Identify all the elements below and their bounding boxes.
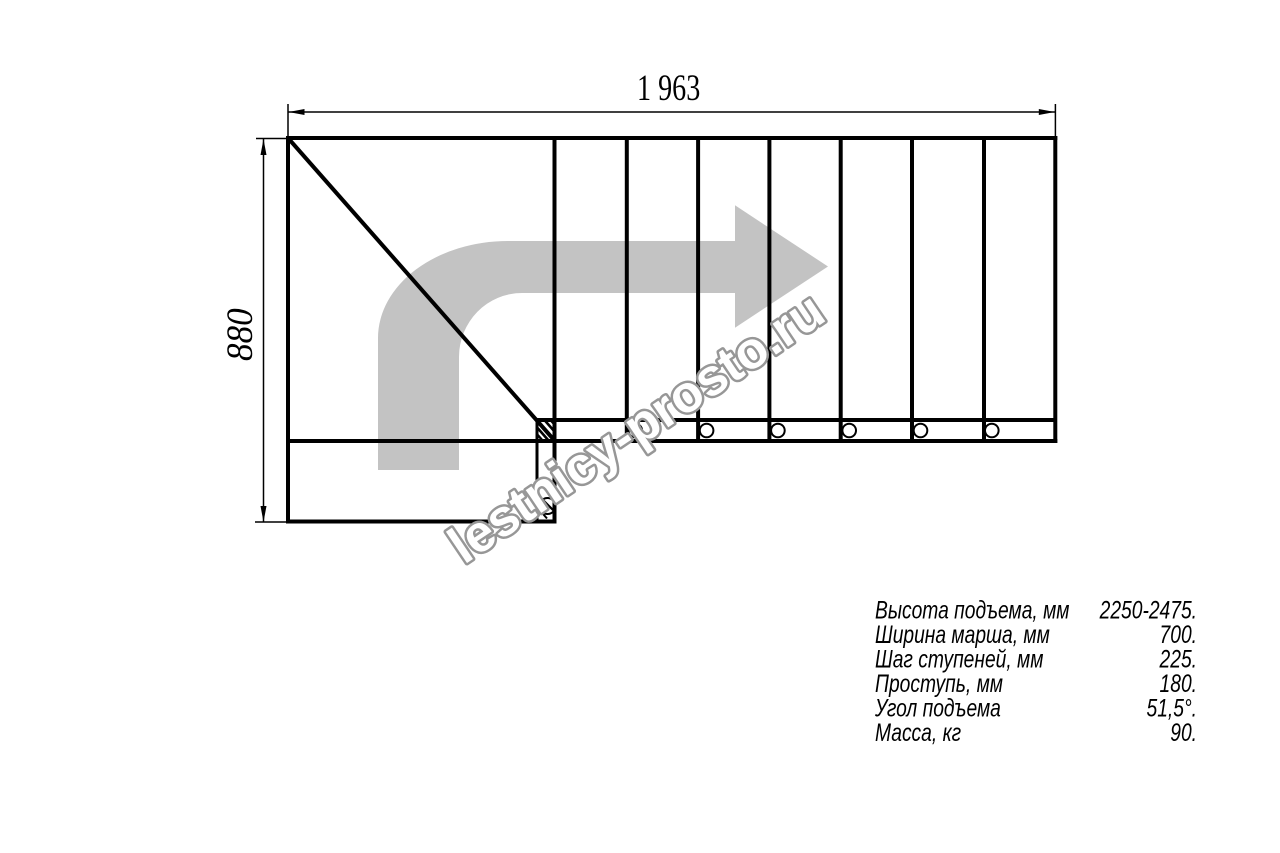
- svg-text:1 963: 1 963: [637, 68, 700, 109]
- svg-text:90.: 90.: [1170, 719, 1197, 747]
- svg-text:Масса, кг: Масса, кг: [875, 719, 961, 747]
- svg-text:880: 880: [219, 308, 260, 361]
